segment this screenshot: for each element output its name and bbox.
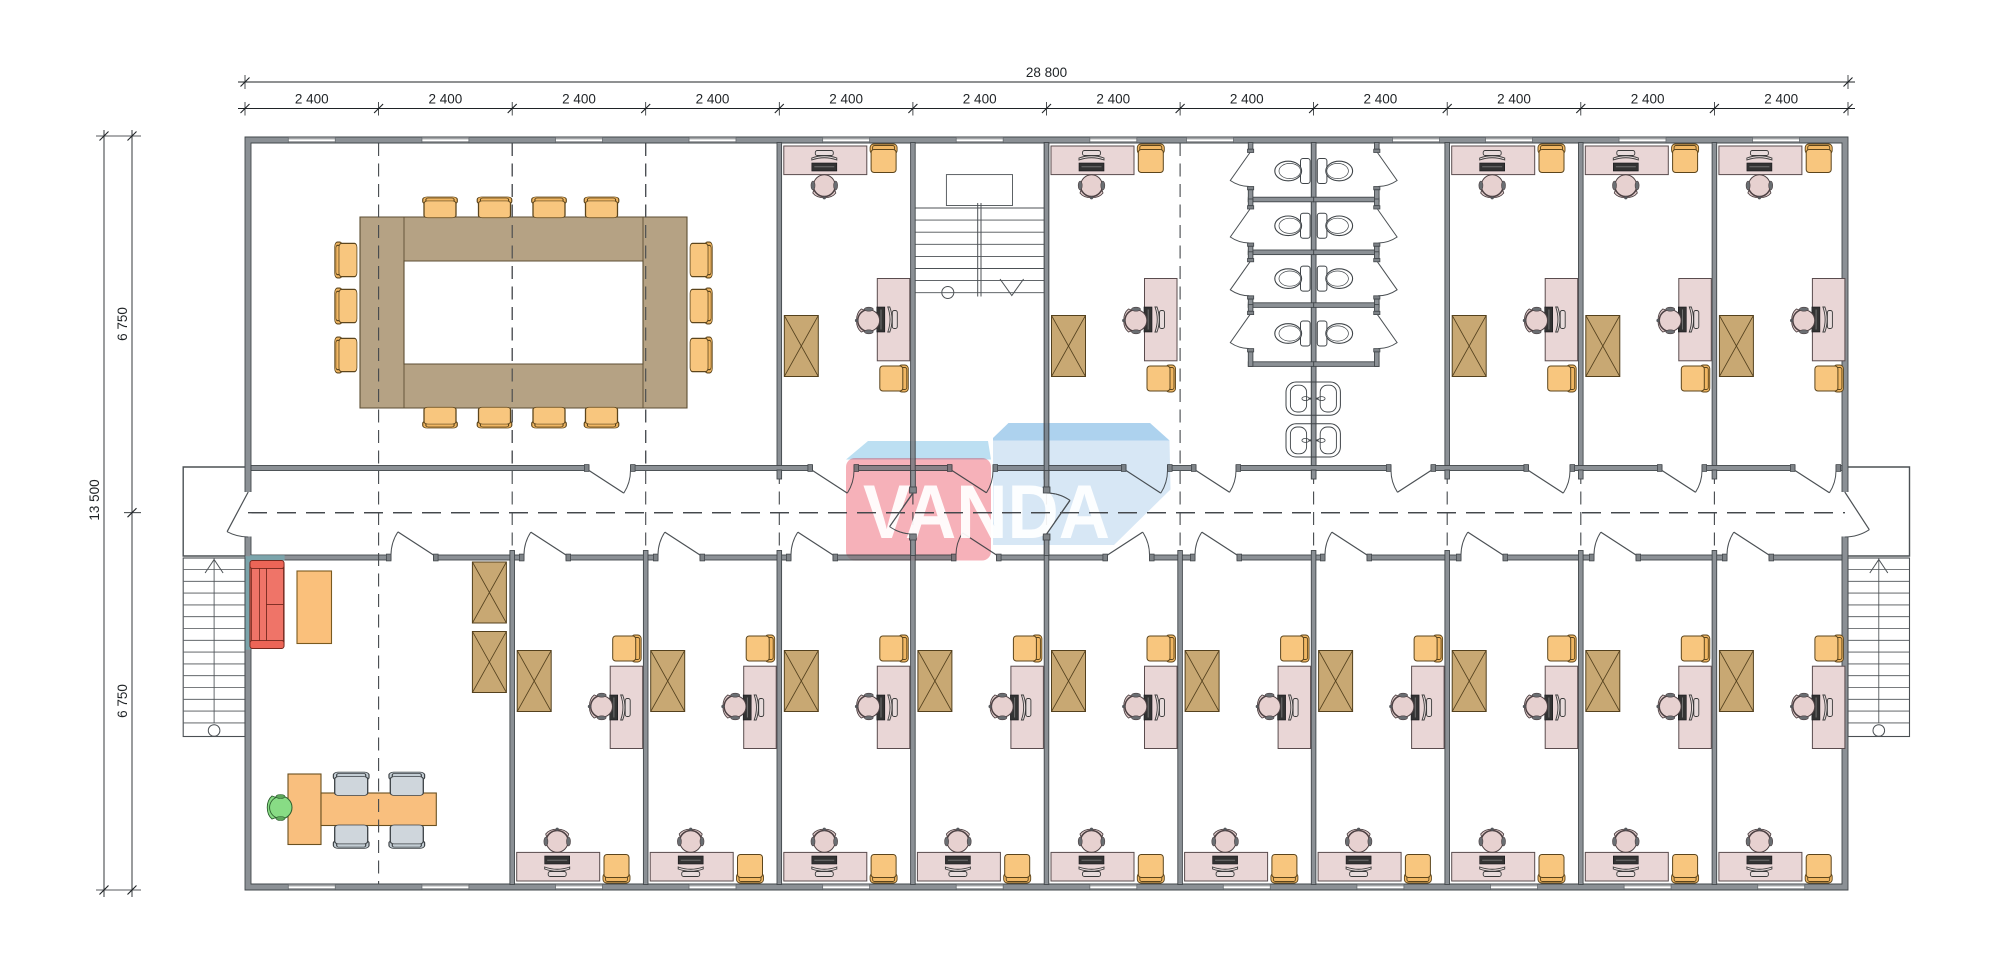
svg-text:2 400: 2 400 — [829, 92, 863, 107]
svg-text:2 400: 2 400 — [1497, 92, 1531, 107]
svg-text:6 750: 6 750 — [115, 684, 130, 718]
svg-text:2 400: 2 400 — [1364, 92, 1398, 107]
svg-text:2 400: 2 400 — [963, 92, 997, 107]
svg-text:2 400: 2 400 — [562, 92, 596, 107]
svg-text:2 400: 2 400 — [1764, 92, 1798, 107]
svg-text:2 400: 2 400 — [1631, 92, 1665, 107]
svg-text:2 400: 2 400 — [429, 92, 463, 107]
svg-text:6 750: 6 750 — [115, 307, 130, 341]
svg-text:2 400: 2 400 — [696, 92, 730, 107]
svg-text:2 400: 2 400 — [1230, 92, 1264, 107]
svg-text:2 400: 2 400 — [1096, 92, 1130, 107]
svg-text:28 800: 28 800 — [1026, 65, 1067, 80]
svg-text:2 400: 2 400 — [295, 92, 329, 107]
svg-text:13 500: 13 500 — [87, 479, 102, 520]
